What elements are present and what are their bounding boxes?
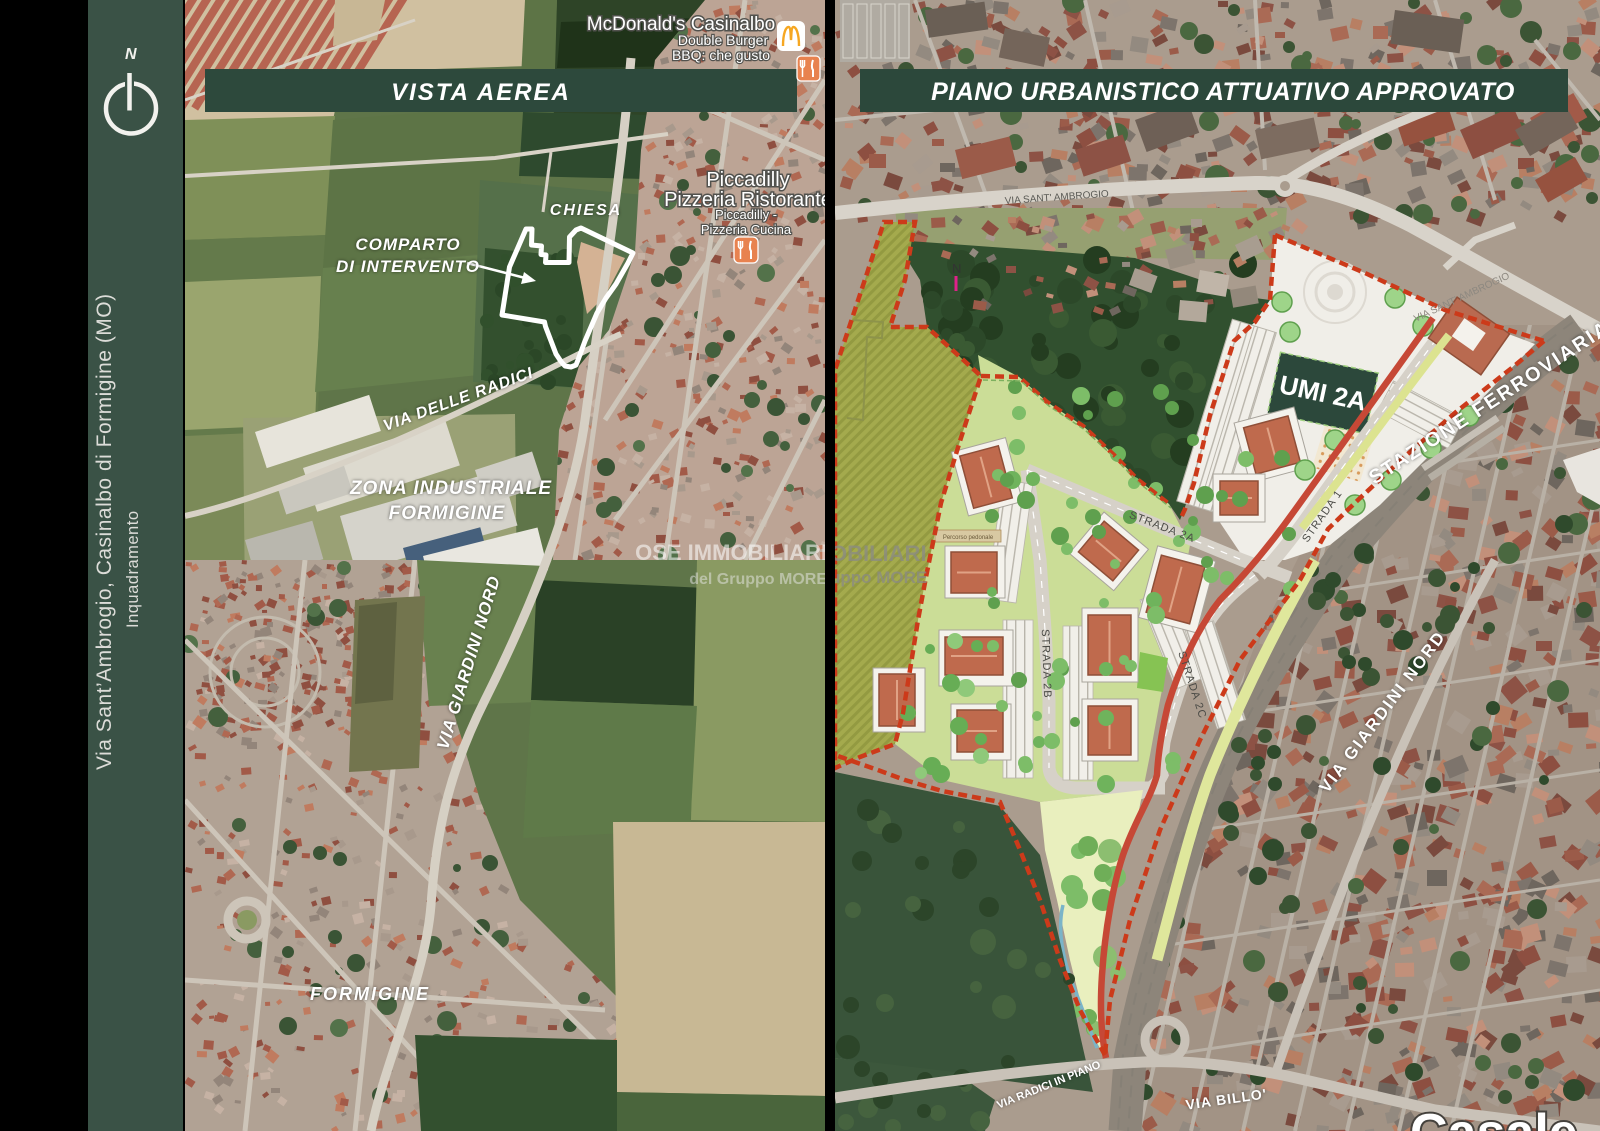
svg-text:N: N: [125, 46, 137, 63]
svg-text:CHIESA: CHIESA: [550, 202, 622, 219]
svg-text:FORMIGINE: FORMIGINE: [389, 503, 506, 524]
svg-text:ZONA INDUSTRIALE: ZONA INDUSTRIALE: [349, 478, 552, 499]
svg-text:Casale: Casale: [1410, 1104, 1578, 1131]
svg-text:BBQ: che gusto: BBQ: che gusto: [672, 47, 770, 63]
svg-text:PIANO URBANISTICO ATTUATIVO AP: PIANO URBANISTICO ATTUATIVO APPROVATO: [931, 78, 1515, 106]
svg-text:del Gruppo MORE: del Gruppo MORE: [689, 571, 825, 588]
svg-text:Piccadilly -: Piccadilly -: [715, 207, 777, 222]
svg-text:N: N: [952, 261, 961, 276]
svg-text:FORMIGINE: FORMIGINE: [310, 984, 430, 1004]
svg-text:Via Sant’Ambrogio, Casinalbo d: Via Sant’Ambrogio, Casinalbo di Formigin…: [93, 293, 116, 770]
svg-text:Pizzeria Cucina: Pizzeria Cucina: [701, 222, 792, 237]
svg-text:uppo MORE: uppo MORE: [835, 568, 927, 587]
svg-text:COMPARTO: COMPARTO: [355, 235, 460, 254]
svg-text:STRADA 2B: STRADA 2B: [1039, 629, 1053, 699]
svg-text:Piccadilly: Piccadilly: [706, 169, 789, 191]
svg-text:DI INTERVENTO: DI INTERVENTO: [336, 257, 480, 276]
svg-text:Inquadramento: Inquadramento: [124, 511, 142, 629]
svg-text:VISTA AEREA: VISTA AEREA: [391, 79, 571, 106]
svg-text:OSE IMMOBILIARI: OSE IMMOBILIARI: [635, 540, 825, 565]
svg-text:OBILIARI: OBILIARI: [835, 541, 927, 566]
svg-text:Percorso pedonale: Percorso pedonale: [943, 535, 994, 541]
svg-text:Double Burger: Double Burger: [678, 32, 769, 48]
